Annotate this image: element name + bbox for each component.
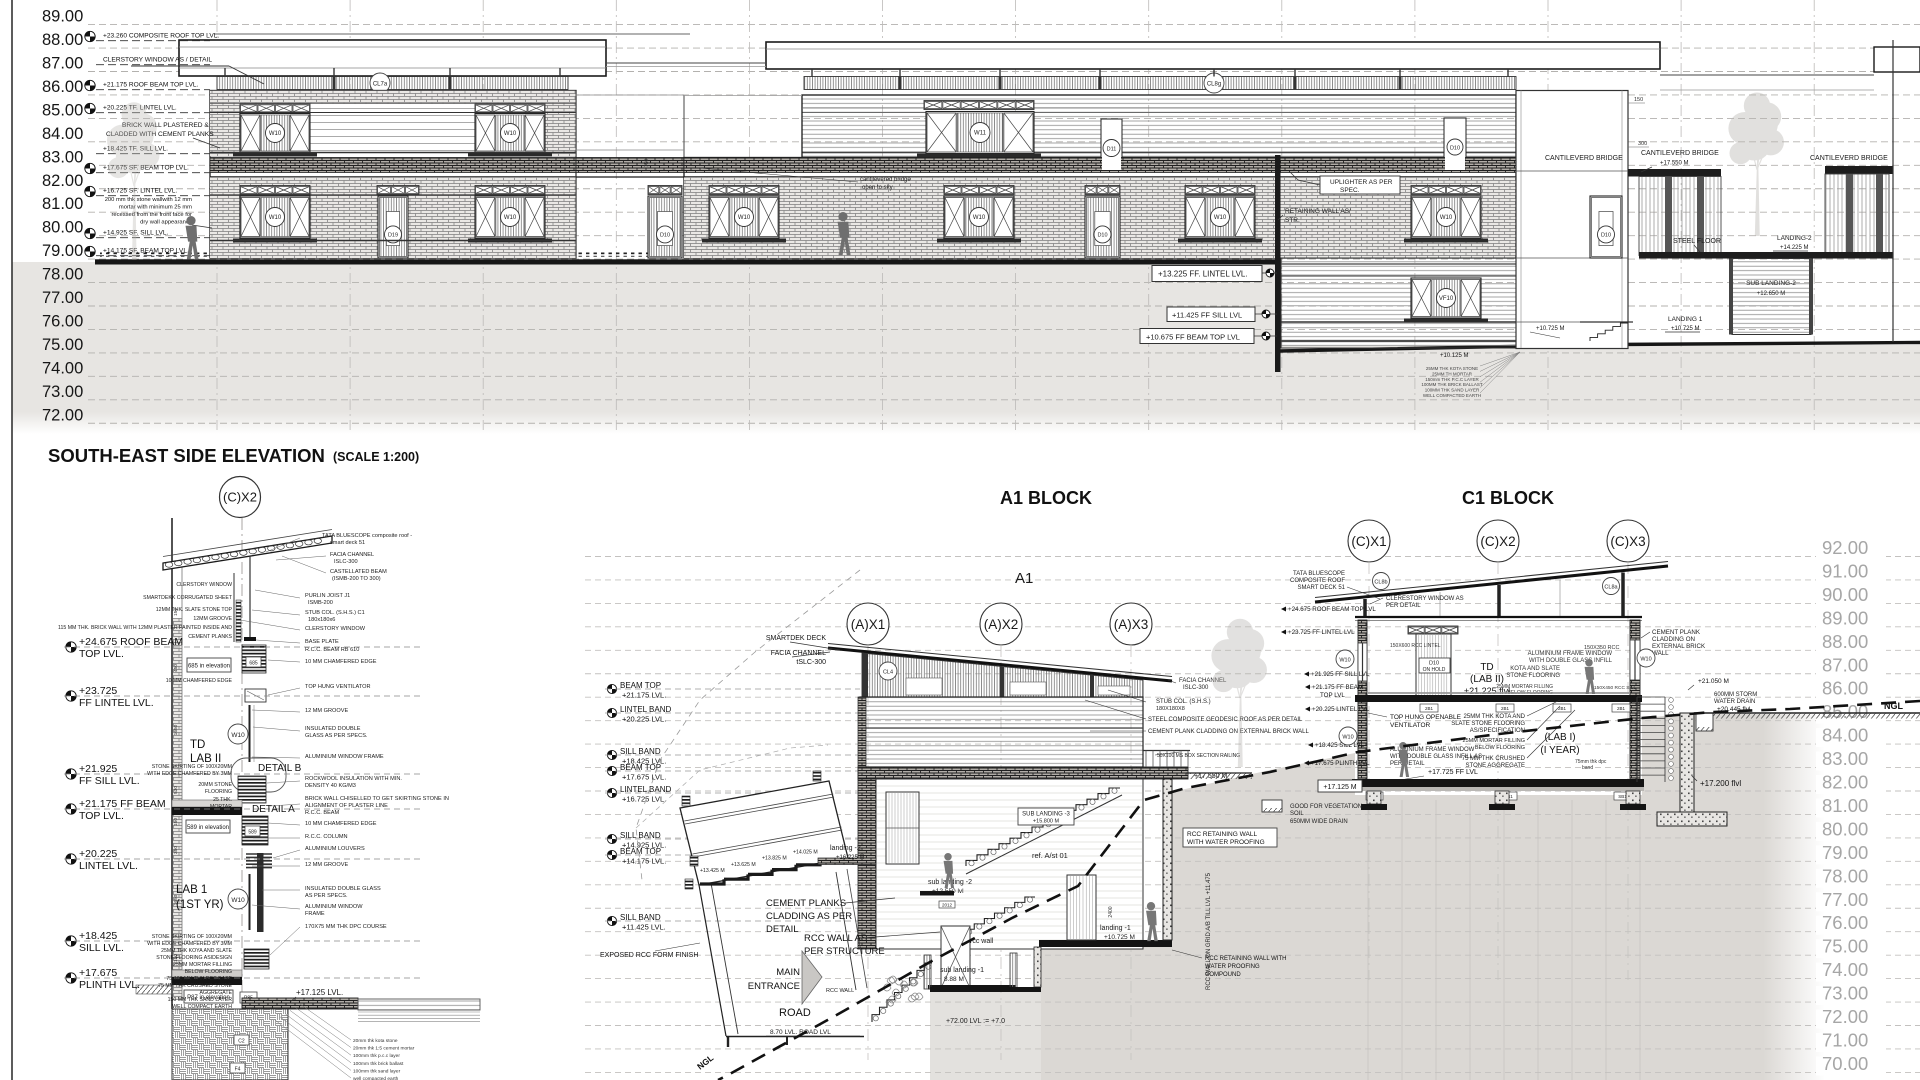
svg-text:CL8b: CL8b [1374, 580, 1387, 586]
svg-text:open to sky: open to sky [862, 185, 893, 191]
svg-text:74.00: 74.00 [1822, 959, 1868, 980]
svg-text:STR.: STR. [1285, 217, 1300, 224]
svg-text:AGGREGATE: AGGREGATE [200, 990, 233, 996]
svg-text:W10: W10 [1342, 735, 1353, 741]
svg-text:+16.725 SF. LINTEL LVL.: +16.725 SF. LINTEL LVL. [103, 188, 177, 195]
svg-text:WATER DRAIN: WATER DRAIN [1714, 699, 1755, 705]
svg-text:D11: D11 [1107, 147, 1117, 153]
svg-text:+13.425 M: +13.425 M [700, 868, 725, 874]
svg-text:(ISMB-200 TO 300): (ISMB-200 TO 300) [332, 576, 381, 582]
svg-text:CLADDING ON: CLADDING ON [1652, 636, 1695, 643]
svg-text:TD: TD [1480, 662, 1493, 673]
svg-text:WELL COMPACTED EARTH: WELL COMPACTED EARTH [1423, 393, 1481, 398]
svg-text:W10: W10 [1339, 658, 1350, 664]
svg-text:+23.725 FF LINTEL LVL: +23.725 FF LINTEL LVL [1288, 629, 1355, 636]
svg-text:EXTERNAL BRICK: EXTERNAL BRICK [1652, 643, 1706, 650]
svg-text:200 mm thk stone wallwith 12: 200 mm thk stone wallwith 12 mm [105, 197, 192, 203]
svg-text:2B1: 2B1 [1425, 706, 1434, 711]
svg-text:STONE SKIRTING OF 100X20MM: STONE SKIRTING OF 100X20MM [152, 934, 232, 940]
svg-text:87.00: 87.00 [42, 55, 83, 73]
svg-text:LAB 1: LAB 1 [176, 884, 207, 896]
svg-text:CLERESTORY WINDOW AS: CLERESTORY WINDOW AS [1386, 596, 1464, 602]
svg-text:150 MM THK SAND LAYER: 150 MM THK SAND LAYER [168, 997, 233, 1003]
svg-text:70.00: 70.00 [1822, 1053, 1868, 1074]
svg-text:91.00: 91.00 [1822, 560, 1868, 581]
svg-text:+13.625 M: +13.625 M [731, 862, 756, 868]
svg-text:12 MM GROOVE: 12 MM GROOVE [305, 862, 348, 868]
svg-text:BELOW FLOORING: BELOW FLOORING [185, 969, 232, 975]
svg-text:WELL COMPACT EARTH: WELL COMPACT EARTH [172, 1004, 232, 1010]
svg-text:dry wall appearance: dry wall appearance [140, 220, 192, 226]
svg-text:180x180x6: 180x180x6 [308, 617, 335, 623]
svg-text:STEEL COMPOSITE GEODESIC ROOF: STEEL COMPOSITE GEODESIC ROOF AS PER DET… [1148, 717, 1303, 723]
svg-text:+21.050 M: +21.050 M [1698, 678, 1729, 685]
svg-text:76.00: 76.00 [42, 312, 83, 330]
svg-text:+20.225 LINTEL LVL: +20.225 LINTEL LVL [1312, 706, 1370, 713]
svg-text:TOP LVL: TOP LVL [1320, 692, 1345, 699]
svg-text:A1 BLOCK: A1 BLOCK [1000, 488, 1092, 508]
svg-text:FF LINTEL LVL.: FF LINTEL LVL. [79, 697, 154, 709]
svg-text:FACIA CHANNEL: FACIA CHANNEL [330, 552, 374, 558]
svg-text:+17.675: +17.675 [79, 967, 117, 979]
svg-text:82.00: 82.00 [1822, 772, 1868, 793]
svg-text:W10: W10 [269, 131, 282, 137]
svg-text:20mm thk kota stone: 20mm thk kota stone [353, 1038, 398, 1044]
svg-text:GLASS AS PER SPECS.: GLASS AS PER SPECS. [305, 733, 368, 739]
svg-text:1650: 1650 [173, 894, 179, 905]
svg-text:BASE PLATE: BASE PLATE [305, 639, 339, 645]
svg-text:86.00: 86.00 [1822, 678, 1868, 699]
svg-text:86.00: 86.00 [42, 78, 83, 96]
svg-text:SILL LVL.: SILL LVL. [79, 942, 124, 954]
svg-text:W10: W10 [1214, 215, 1227, 221]
svg-text:77.00: 77.00 [1822, 889, 1868, 910]
svg-text:SUB LANDING-2: SUB LANDING-2 [1746, 280, 1796, 287]
svg-text:(C)X1: (C)X1 [1351, 534, 1386, 549]
svg-text:80.00: 80.00 [42, 219, 83, 237]
svg-text:F4: F4 [235, 1067, 241, 1073]
svg-text:UPLIGHTER AS PER: UPLIGHTER AS PER [1330, 179, 1393, 186]
svg-text:CANTILEVERD BRIDGE: CANTILEVERD BRIDGE [1641, 150, 1719, 157]
svg-text:(I YEAR): (I YEAR) [1540, 745, 1579, 756]
svg-text:25MM THK KOTA AND: 25MM THK KOTA AND [1464, 714, 1526, 720]
svg-text:ALUMINIUM WINDOW: ALUMINIUM WINDOW [305, 904, 363, 910]
svg-text:SOUTH-EAST SIDE ELEVATION: SOUTH-EAST SIDE ELEVATION [48, 445, 325, 466]
svg-text:50X100 MS BOX SECTION RAILING: 50X100 MS BOX SECTION RAILING [1157, 753, 1240, 759]
svg-text:CLERSTORY WINDOW: CLERSTORY WINDOW [305, 626, 366, 632]
svg-text:150X600 RCC LINTEL: 150X600 RCC LINTEL [1390, 643, 1441, 649]
svg-text:KOTA AND SLATE: KOTA AND SLATE [1510, 666, 1560, 672]
svg-text:89.00: 89.00 [1822, 607, 1868, 628]
svg-text:100MM THK SAND LAYER: 100MM THK SAND LAYER [1425, 388, 1480, 393]
svg-text:600MM STORM: 600MM STORM [1714, 692, 1757, 698]
svg-text:76.00: 76.00 [1822, 912, 1868, 933]
svg-text:100mm thk p.c.c layer: 100mm thk p.c.c layer [353, 1053, 400, 1059]
svg-text:20MM STONE: 20MM STONE [198, 782, 232, 788]
svg-text:D19: D19 [388, 232, 398, 238]
svg-text:ALIGNMENT OF PLASTER LINE: ALIGNMENT OF PLASTER LINE [305, 803, 388, 809]
svg-text:+17.725 FF LVL: +17.725 FF LVL [1428, 769, 1478, 776]
svg-text:PER DETAIL: PER DETAIL [1386, 603, 1421, 609]
svg-text:79.00: 79.00 [1822, 842, 1868, 863]
svg-text:+14.225 M: +14.225 M [1780, 245, 1809, 251]
svg-text:RCC RETAINING WALL WITH: RCC RETAINING WALL WITH [1205, 956, 1286, 962]
svg-text:RCC WALL ON GRID A/B TILL LVL: RCC WALL ON GRID A/B TILL LVL +11.475 [1206, 872, 1212, 990]
svg-text:well compacted earth: well compacted earth [353, 1076, 399, 1080]
svg-text:ON HOLD: ON HOLD [1423, 667, 1446, 673]
svg-text:87.00: 87.00 [1822, 654, 1868, 675]
svg-text:VENTILATOR: VENTILATOR [1390, 722, 1431, 729]
svg-text:+10.125 M: +10.125 M [1440, 353, 1469, 359]
svg-text:300: 300 [1638, 141, 1647, 147]
svg-text:170X75 MM THK DPC COURSE: 170X75 MM THK DPC COURSE [305, 924, 387, 930]
svg-text:W10: W10 [973, 215, 986, 221]
svg-text:589: 589 [248, 830, 257, 836]
svg-text:25MM MORTAR FILLING: 25MM MORTAR FILLING [1463, 738, 1525, 744]
svg-text:CEMENT PLANKS: CEMENT PLANKS [766, 898, 846, 909]
svg-text:+13.825 M: +13.825 M [762, 856, 787, 862]
svg-text:72.00: 72.00 [1822, 1006, 1868, 1027]
svg-text:RETAINING WALL AS/: RETAINING WALL AS/ [1285, 208, 1351, 215]
svg-text:CASTELLATED BEAM: CASTELLATED BEAM [330, 569, 387, 575]
svg-text:DETAIL B: DETAIL B [258, 763, 302, 774]
svg-text:+18.425: +18.425 [79, 930, 117, 942]
svg-text:25 THK.: 25 THK. [213, 797, 232, 803]
svg-text:+14.175 LVL.: +14.175 LVL. [622, 857, 666, 866]
svg-text:20mm thk 1:5 cement mortar: 20mm thk 1:5 cement mortar [353, 1046, 415, 1052]
svg-text:LINTEL LVL.: LINTEL LVL. [79, 860, 138, 872]
svg-text:+17.125 LVL.: +17.125 LVL. [296, 988, 343, 997]
svg-text:ALUMINIUM LOUVERS: ALUMINIUM LOUVERS [305, 846, 365, 852]
svg-text:W10: W10 [504, 131, 517, 137]
svg-text:ALUMINIUM WINDOW FRAME: ALUMINIUM WINDOW FRAME [305, 754, 384, 760]
svg-text:R.C.C. BEAM: R.C.C. BEAM [305, 810, 340, 816]
svg-text:D10: D10 [1097, 232, 1107, 238]
svg-text:(LAB I): (LAB I) [1544, 732, 1575, 743]
svg-text:ISMB-200: ISMB-200 [308, 600, 333, 606]
svg-text:+16.725 LVL.: +16.725 LVL. [622, 795, 666, 804]
svg-text:FLOORING: FLOORING [205, 789, 232, 795]
svg-text:W10: W10 [504, 215, 517, 221]
svg-text:12MM THK. SLATE STONE TOP: 12MM THK. SLATE STONE TOP [156, 607, 233, 613]
svg-text:100mm thk sand layer: 100mm thk sand layer [353, 1068, 401, 1074]
svg-text:SMARTDEKK CORRUGATED SHEET: SMARTDEKK CORRUGATED SHEET [143, 595, 233, 601]
svg-text:150mm THK P.C.C LAYER: 150mm THK P.C.C LAYER [1425, 377, 1479, 382]
svg-text:88.00: 88.00 [42, 31, 83, 49]
svg-text:+11.425 LVL.: +11.425 LVL. [622, 923, 666, 932]
svg-text:+17.200 flvl: +17.200 flvl [1700, 779, 1741, 788]
svg-text:(C)X2: (C)X2 [223, 490, 257, 505]
svg-text:+17.675 LVL.: +17.675 LVL. [622, 773, 666, 782]
svg-text:78.00: 78.00 [42, 266, 83, 284]
svg-text:+72.00 LVL := +7.0: +72.00 LVL := +7.0 [946, 1018, 1005, 1025]
svg-text:73.00: 73.00 [1822, 983, 1868, 1004]
svg-text:+13.225 FF. LINTEL LVL.: +13.225 FF. LINTEL LVL. [1158, 270, 1248, 279]
svg-text:GOOD FOR VEGETATION: GOOD FOR VEGETATION [1290, 804, 1362, 810]
svg-text:685: 685 [249, 661, 258, 667]
svg-text:750: 750 [644, 159, 650, 168]
svg-text:ref. A/st 01: ref. A/st 01 [1032, 851, 1068, 860]
svg-text:+14.025 M: +14.025 M [793, 849, 818, 855]
svg-text:CANTILEVERD BRIDGE: CANTILEVERD BRIDGE [1810, 155, 1888, 162]
svg-text:150: 150 [1634, 97, 1643, 103]
svg-text:150: 150 [173, 954, 179, 962]
svg-text:84.00: 84.00 [1822, 725, 1868, 746]
svg-text:ISLC-300: ISLC-300 [334, 559, 358, 565]
svg-text:RCC WALL AS: RCC WALL AS [804, 933, 867, 944]
svg-text:band: band [1582, 765, 1593, 771]
svg-text:650MM WIDE DRAIN: 650MM WIDE DRAIN [1290, 819, 1348, 825]
svg-text:+23.725: +23.725 [79, 685, 117, 697]
svg-text:WITH EDGE CHAMFERED BY 3MM: WITH EDGE CHAMFERED BY 3MM [147, 771, 232, 777]
svg-text:2B1: 2B1 [1501, 706, 1510, 711]
svg-text:D10: D10 [1429, 661, 1439, 667]
svg-text:+17.550 M: +17.550 M [1660, 161, 1689, 167]
svg-text:TOP HUNG VENTILATOR: TOP HUNG VENTILATOR [305, 684, 370, 690]
svg-text:25MM MORTAR FILLING: 25MM MORTAR FILLING [173, 962, 232, 968]
svg-text:NGL: NGL [695, 1053, 715, 1072]
svg-text:TATA BLUESCOPE composite roof: TATA BLUESCOPE composite roof - [322, 533, 412, 539]
svg-text:DETAIL: DETAIL [766, 924, 799, 935]
svg-text:CL8a: CL8a [1604, 585, 1618, 591]
svg-text:+10.675 FF BEAM TOP LVL: +10.675 FF BEAM TOP LVL [1146, 333, 1240, 342]
svg-text:73.00: 73.00 [42, 383, 83, 401]
svg-text:81.00: 81.00 [42, 195, 83, 213]
svg-text:TOP LVL.: TOP LVL. [79, 810, 124, 822]
svg-text:ROAD: ROAD [779, 1007, 811, 1019]
svg-text:100MM THK BRICK BALLAST: 100MM THK BRICK BALLAST [1421, 382, 1482, 387]
svg-text:82.00: 82.00 [42, 172, 83, 190]
svg-text:+21.175 FF BEAM: +21.175 FF BEAM [79, 798, 166, 810]
svg-text:R.C.C. BEAM RB 610: R.C.C. BEAM RB 610 [305, 647, 359, 653]
svg-text:D10: D10 [1601, 232, 1611, 238]
svg-text:+10.725 M: +10.725 M [1104, 934, 1135, 941]
svg-text:SUB LANDING -3: SUB LANDING -3 [1022, 812, 1070, 818]
svg-text:D10: D10 [1450, 146, 1460, 152]
svg-text:sub landing -1: sub landing -1 [940, 967, 984, 974]
svg-text:PLINTH LVL.: PLINTH LVL. [79, 979, 140, 991]
svg-text:+21.925: +21.925 [79, 763, 117, 775]
svg-text:STUB COL. (S.H.S.) C1: STUB COL. (S.H.S.) C1 [305, 610, 365, 616]
svg-text:74.00: 74.00 [42, 359, 83, 377]
svg-text:STUB COL. (S.H.S.): STUB COL. (S.H.S.) [1156, 699, 1211, 705]
svg-text:ISLC-300: ISLC-300 [1183, 685, 1209, 691]
svg-text:+12.550 lvl: +12.550 lvl [932, 888, 964, 895]
svg-text:VF10: VF10 [1439, 296, 1454, 302]
svg-text:INSULATED DOUBLE: INSULATED DOUBLE [305, 726, 361, 732]
svg-text:W10: W10 [231, 897, 245, 904]
svg-text:STONE FLOORING: STONE FLOORING [1506, 673, 1560, 679]
svg-text:W10: W10 [269, 215, 282, 221]
svg-text:FRAME: FRAME [305, 911, 325, 917]
svg-text:(C)X3: (C)X3 [1610, 534, 1645, 549]
svg-text:RCC RETAINING WALL: RCC RETAINING WALL [1187, 831, 1257, 838]
svg-text:+18.425 SILL LVL: +18.425 SILL LVL [1315, 742, 1365, 749]
svg-text:(A)X2: (A)X2 [984, 617, 1019, 632]
svg-text:+24.675 ROOF BEAM: +24.675 ROOF BEAM [79, 636, 183, 648]
svg-text:TD: TD [190, 739, 205, 751]
svg-text:TOP LVL.: TOP LVL. [79, 648, 124, 660]
svg-text:12MM GROOVE: 12MM GROOVE [193, 616, 232, 622]
svg-text:79.00: 79.00 [42, 242, 83, 260]
svg-text:83.00: 83.00 [42, 148, 83, 166]
svg-text:81.00: 81.00 [1822, 795, 1868, 816]
svg-text:mortar with minimum 25 mm: mortar with minimum 25 mm [119, 205, 192, 211]
svg-text:+21.175 FF BEAM: +21.175 FF BEAM [1312, 684, 1363, 691]
svg-text:CLADDING AS PER: CLADDING AS PER [766, 911, 852, 922]
svg-text:PER STRUCTURE: PER STRUCTURE [804, 946, 885, 957]
svg-text:85.00: 85.00 [42, 101, 83, 119]
svg-text:+21.175 ROOF BEAM TOP LVL.: +21.175 ROOF BEAM TOP LVL. [103, 82, 199, 89]
svg-text:SOIL: SOIL [1290, 811, 1304, 817]
svg-text:75 MM THK CRUSHED STONE: 75 MM THK CRUSHED STONE [158, 983, 232, 989]
svg-text:(SCALE 1:200): (SCALE 1:200) [333, 450, 419, 464]
svg-text:CL7a: CL7a [373, 82, 388, 88]
svg-text:EXPOSED RCC FORM FINISH: EXPOSED RCC FORM FINISH [600, 952, 698, 959]
svg-text:recessed from the front face: recessed from the front face for [111, 212, 192, 218]
svg-text:W10: W10 [1640, 657, 1651, 663]
svg-text:FF SILL LVL.: FF SILL LVL. [79, 775, 140, 787]
svg-text:+14.175 SF. BEAM TOP LVL.: +14.175 SF. BEAM TOP LVL. [103, 248, 189, 255]
svg-text:SMART DECK 51: SMART DECK 51 [1298, 585, 1346, 591]
svg-text:W11: W11 [974, 131, 987, 137]
svg-text:25MM TH MORTAR: 25MM TH MORTAR [1432, 371, 1473, 376]
svg-text:landing -1: landing -1 [1100, 925, 1131, 932]
svg-text:SMARTDEK DECK: SMARTDEK DECK [766, 635, 826, 642]
svg-text:STEEL FLOOR: STEEL FLOOR [1673, 238, 1721, 245]
svg-text:1650: 1650 [173, 724, 179, 735]
svg-text:72.00: 72.00 [42, 406, 83, 424]
svg-text:685 in elevation: 685 in elevation [188, 664, 230, 670]
svg-text:88.00: 88.00 [1822, 631, 1868, 652]
svg-text:AS PER SPECS.: AS PER SPECS. [305, 893, 348, 899]
svg-text:150: 150 [173, 608, 179, 616]
svg-text:STONE SKIRTING OF 100X20MM: STONE SKIRTING OF 100X20MM [152, 764, 232, 770]
svg-text:80.00: 80.00 [1822, 818, 1868, 839]
svg-text:TOP HUNG OPENABLE: TOP HUNG OPENABLE [1390, 714, 1462, 721]
svg-text:C2: C2 [238, 1039, 245, 1045]
svg-text:tSLC-300: tSLC-300 [796, 659, 826, 666]
svg-text:W10: W10 [738, 215, 751, 221]
svg-text:CL4: CL4 [883, 670, 893, 676]
svg-text:+11.425 FF SILL LVL: +11.425 FF SILL LVL [1172, 311, 1242, 320]
svg-text:CEMENT PLANK: CEMENT PLANK [1652, 629, 1701, 636]
svg-text:115 MM THK. BRICK WALL WITH 12: 115 MM THK. BRICK WALL WITH 12MM PLASTER… [58, 625, 232, 631]
svg-text:530: 530 [173, 786, 179, 794]
svg-text:+21.175 LVL.: +21.175 LVL. [622, 691, 666, 700]
svg-text:INSULATED DOUBLE GLASS: INSULATED DOUBLE GLASS [305, 886, 381, 892]
svg-text:PURLIN JOIST J1: PURLIN JOIST J1 [305, 593, 350, 599]
svg-text:75-100 MM THK PCC BASE: 75-100 MM THK PCC BASE [166, 976, 232, 982]
svg-text:10 MM CHAMFERED EDGE: 10 MM CHAMFERED EDGE [305, 659, 377, 665]
svg-text:ENTRANCE: ENTRANCE [748, 981, 800, 992]
svg-text:smart deck 51: smart deck 51 [330, 540, 365, 546]
svg-text:71.00: 71.00 [1822, 1029, 1868, 1050]
svg-text:C1 BLOCK: C1 BLOCK [1462, 488, 1554, 508]
svg-text:R.C.C. COLUMN: R.C.C. COLUMN [305, 834, 348, 840]
svg-text:cantilevered bridge: cantilevered bridge [860, 177, 911, 183]
svg-text:450: 450 [173, 664, 179, 672]
svg-text:150X450 RCC SILL: 150X450 RCC SILL [1594, 685, 1636, 691]
svg-text:CEMENT PLANKS: CEMENT PLANKS [188, 634, 232, 640]
svg-text:RCC WALL: RCC WALL [826, 988, 854, 994]
svg-text:89.00: 89.00 [42, 8, 83, 26]
svg-text:A1: A1 [1015, 570, 1033, 587]
svg-text:+15.800 M: +15.800 M [1033, 819, 1060, 825]
svg-text:10 MM CHAMFERED EDGE: 10 MM CHAMFERED EDGE [305, 821, 377, 827]
svg-text:589 in elevation: 589 in elevation [187, 825, 229, 831]
svg-text:landing -2: landing -2 [830, 845, 861, 852]
svg-text:+20.225 LVL.: +20.225 LVL. [622, 715, 666, 724]
svg-text:25MM THK KOYA AND SLATE: 25MM THK KOYA AND SLATE [161, 948, 232, 954]
svg-text:ROCKWOOL INSULATION WITH MIN.: ROCKWOOL INSULATION WITH MIN. [305, 776, 402, 782]
svg-text:+10.725 M: +10.725 M [1536, 326, 1565, 332]
svg-text:CLERSTORY WINDOW AS / DETAIL: CLERSTORY WINDOW AS / DETAIL [103, 57, 212, 64]
svg-text:LANDING-2: LANDING-2 [1777, 235, 1812, 242]
svg-text:(1ST YR): (1ST YR) [176, 899, 224, 911]
svg-text:+24.675 ROOF BEAM TOP LVL: +24.675 ROOF BEAM TOP LVL [1288, 606, 1376, 613]
svg-text:75.00: 75.00 [42, 336, 83, 354]
svg-text:WITH DOUBLE GLASS INFILL: WITH DOUBLE GLASS INFILL [1529, 658, 1613, 664]
svg-text:(C)X2: (C)X2 [1480, 534, 1515, 549]
svg-text:MAIN: MAIN [776, 967, 800, 978]
svg-text:+16.225 M: +16.225 M [836, 855, 865, 861]
svg-text:25MM THK KOTA STONE: 25MM THK KOTA STONE [1426, 366, 1478, 371]
svg-text:350: 350 [173, 846, 179, 854]
svg-text:84.00: 84.00 [42, 125, 83, 143]
svg-text:77.00: 77.00 [42, 289, 83, 307]
svg-text:AS/SPECIFICATION: AS/SPECIFICATION [1470, 728, 1525, 734]
svg-text:W10: W10 [1440, 215, 1453, 221]
svg-text:2400: 2400 [1108, 906, 1114, 917]
svg-text:12 MM GROOVE: 12 MM GROOVE [305, 708, 348, 714]
svg-text:WATER PROOFING: WATER PROOFING [1205, 964, 1260, 970]
svg-text:90.00: 90.00 [1822, 584, 1868, 605]
svg-text:STONE FLOORING ASIDESIGN: STONE FLOORING ASIDESIGN [156, 955, 232, 961]
svg-text:SLATE STONE FLOORING: SLATE STONE FLOORING [1451, 721, 1525, 727]
svg-text:D10: D10 [660, 232, 670, 238]
svg-text:MORTAR: MORTAR [210, 804, 232, 810]
svg-text:10 MM CHAMFERED EDGE: 10 MM CHAMFERED EDGE [166, 678, 233, 684]
svg-text:WITH WATER PROOFING: WITH WATER PROOFING [1187, 839, 1265, 846]
svg-text:+10.725 M: +10.725 M [1671, 326, 1700, 332]
svg-text:100mm thk brick ballast: 100mm thk brick ballast [353, 1061, 404, 1067]
svg-text:SPEC.: SPEC. [1340, 187, 1360, 194]
svg-text:TATA BLUESCOPE: TATA BLUESCOPE [1293, 571, 1345, 577]
svg-text:75.00: 75.00 [1822, 936, 1868, 957]
svg-text:CL8g: CL8g [1207, 82, 1221, 88]
svg-text:(A)X3: (A)X3 [1114, 617, 1149, 632]
svg-text:BRICK WALL CHISELLED TO GET SK: BRICK WALL CHISELLED TO GET SKIRTING STO… [305, 796, 449, 802]
svg-text:150: 150 [173, 818, 179, 826]
svg-text:DENSITY 40 KG/M3: DENSITY 40 KG/M3 [305, 783, 356, 789]
svg-text:CANTILEVERD BRIDGE: CANTILEVERD BRIDGE [1545, 155, 1623, 162]
svg-text:(A)X1: (A)X1 [851, 617, 886, 632]
svg-text:78.00: 78.00 [1822, 865, 1868, 886]
svg-text:COMPOSITE ROOF: COMPOSITE ROOF [1290, 578, 1345, 584]
svg-text:83.00: 83.00 [1822, 748, 1868, 769]
svg-text:+17.125 M: +17.125 M [1323, 784, 1356, 791]
svg-text:+12.650 M: +12.650 M [1757, 291, 1786, 297]
svg-text:8.88 M: 8.88 M [944, 976, 964, 983]
svg-text:WITH EDGE CHAMFERED BY 3MM: WITH EDGE CHAMFERED BY 3MM [147, 941, 232, 947]
svg-text:+20.225: +20.225 [79, 848, 117, 860]
svg-text:LANDING 1: LANDING 1 [1668, 316, 1703, 323]
svg-text:2B1: 2B1 [1617, 706, 1626, 711]
svg-text:CEMENT PLANK CLADDING ON EXTER: CEMENT PLANK CLADDING ON EXTERNAL BRICK … [1148, 729, 1309, 735]
svg-text:92.00: 92.00 [1822, 537, 1868, 558]
svg-text:BELOW FLOORING: BELOW FLOORING [1475, 745, 1525, 751]
